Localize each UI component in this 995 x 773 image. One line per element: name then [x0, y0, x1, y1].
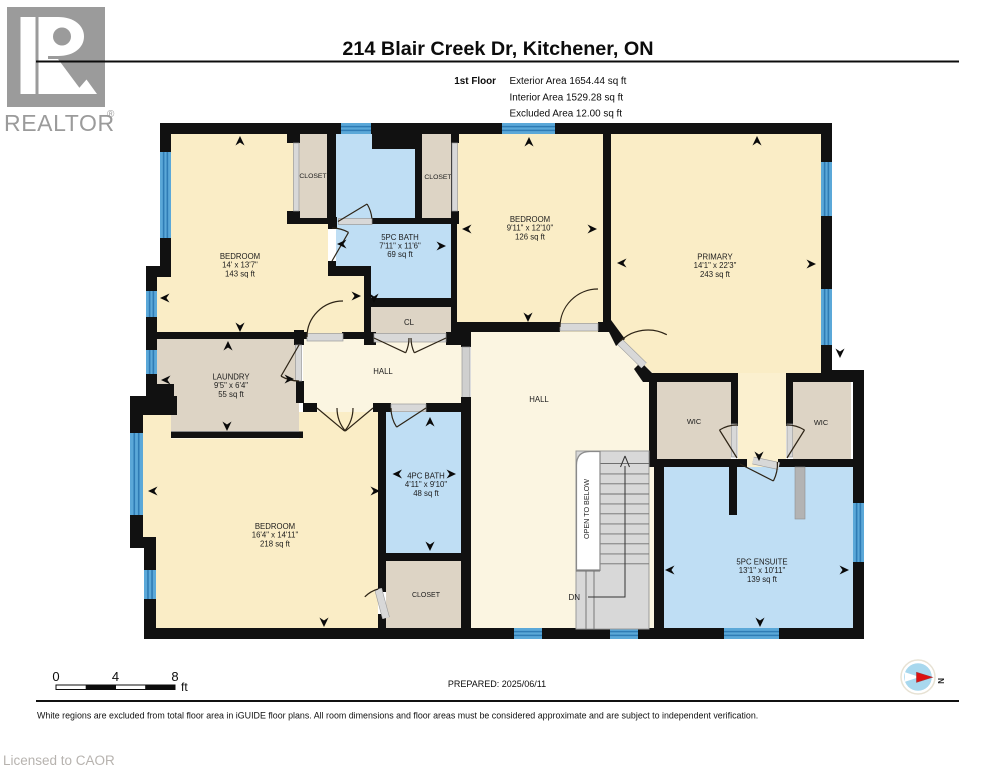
svg-text:HALL: HALL	[529, 395, 549, 404]
svg-text:WIC: WIC	[687, 417, 702, 426]
svg-text:69 sq ft: 69 sq ft	[387, 250, 413, 259]
svg-text:214 Blair Creek Dr, Kitchener,: 214 Blair Creek Dr, Kitchener, ON	[342, 38, 653, 60]
svg-text:Licensed to CAOR: Licensed to CAOR	[3, 753, 115, 768]
svg-text:243 sq ft: 243 sq ft	[700, 270, 731, 279]
svg-text:4: 4	[112, 669, 119, 684]
svg-text:Exterior Area 1654.44 sq ft: Exterior Area 1654.44 sq ft	[510, 76, 627, 87]
svg-text:Excluded Area 12.00 sq ft: Excluded Area 12.00 sq ft	[510, 109, 623, 120]
svg-text:REALTOR: REALTOR	[4, 110, 115, 136]
svg-text:126 sq ft: 126 sq ft	[515, 232, 546, 241]
svg-text:218 sq ft: 218 sq ft	[260, 539, 291, 548]
svg-text:PREPARED: 2025/06/11: PREPARED: 2025/06/11	[448, 679, 546, 689]
svg-text:1st Floor: 1st Floor	[454, 76, 496, 87]
svg-text:N: N	[936, 678, 945, 684]
svg-text:CL: CL	[404, 318, 415, 327]
svg-text:CLOSET: CLOSET	[299, 173, 326, 180]
svg-text:White regions are excluded fro: White regions are excluded from total fl…	[37, 711, 758, 721]
svg-text:WIC: WIC	[814, 418, 829, 427]
svg-text:OPEN TO BELOW: OPEN TO BELOW	[582, 479, 591, 539]
svg-text:0: 0	[52, 669, 59, 684]
svg-text:CLOSET: CLOSET	[424, 174, 451, 181]
svg-text:CLOSET: CLOSET	[412, 592, 441, 599]
svg-text:Interior Area 1529.28 sq ft: Interior Area 1529.28 sq ft	[510, 93, 624, 104]
svg-text:®: ®	[107, 109, 115, 120]
svg-text:55 sq ft: 55 sq ft	[218, 390, 244, 399]
svg-text:ft: ft	[181, 680, 188, 694]
svg-text:8: 8	[171, 669, 178, 684]
svg-text:143 sq ft: 143 sq ft	[225, 269, 256, 278]
svg-text:HALL: HALL	[373, 367, 393, 376]
svg-text:139 sq ft: 139 sq ft	[747, 575, 778, 584]
svg-text:48 sq ft: 48 sq ft	[413, 489, 439, 498]
svg-text:DN: DN	[568, 593, 580, 602]
